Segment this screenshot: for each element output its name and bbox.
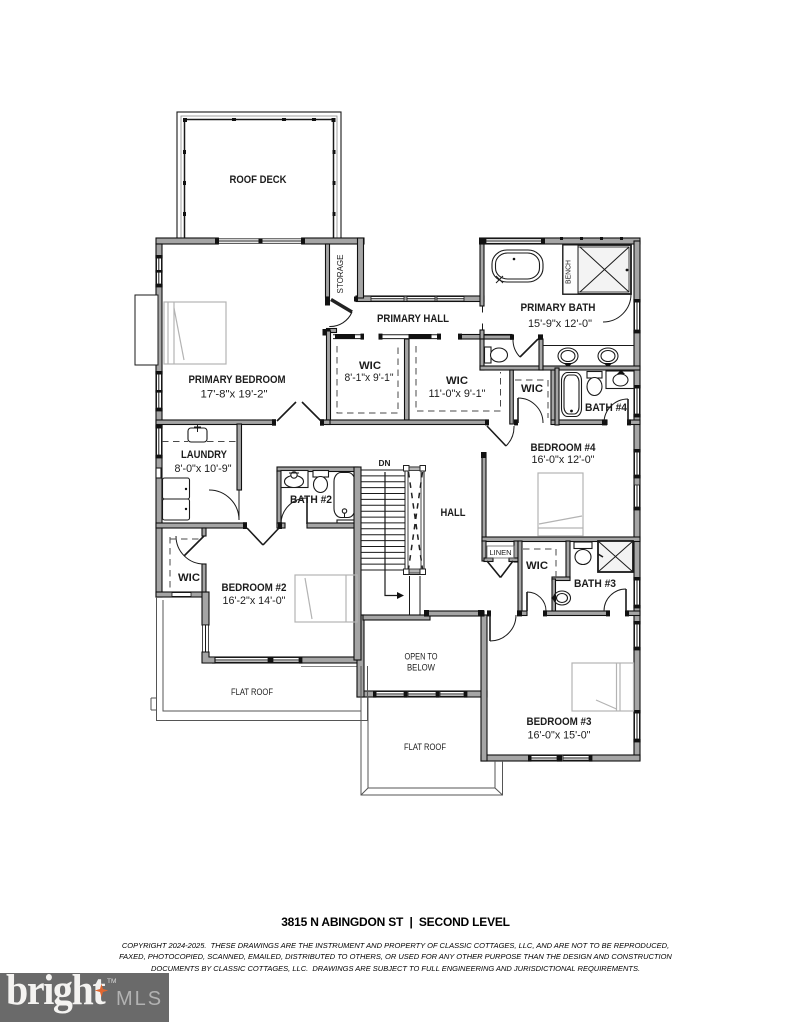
svg-text:8'-0"x 10'-9": 8'-0"x 10'-9"	[175, 463, 232, 475]
svg-text:8'-1"x 9'-1": 8'-1"x 9'-1"	[345, 372, 394, 384]
svg-text:PRIMARY BATH: PRIMARY BATH	[521, 302, 596, 314]
svg-text:15'-9"x 12'-0": 15'-9"x 12'-0"	[528, 318, 592, 330]
svg-text:BATH #4: BATH #4	[585, 402, 628, 414]
svg-text:BELOW: BELOW	[407, 663, 435, 673]
svg-text:FLAT ROOF: FLAT ROOF	[231, 687, 273, 697]
svg-text:STORAGE: STORAGE	[336, 255, 345, 294]
svg-text:LAUNDRY: LAUNDRY	[181, 449, 228, 461]
svg-text:BEDROOM #3: BEDROOM #3	[527, 716, 592, 728]
svg-text:BEDROOM #2: BEDROOM #2	[222, 582, 287, 594]
svg-text:BEDROOM #4: BEDROOM #4	[531, 442, 597, 454]
svg-text:OPEN TO: OPEN TO	[405, 652, 438, 662]
svg-text:FLAT ROOF: FLAT ROOF	[404, 742, 446, 752]
svg-text:17'-8"x 19'-2": 17'-8"x 19'-2"	[201, 389, 268, 401]
svg-text:HALL: HALL	[441, 507, 466, 519]
svg-text:BATH #2: BATH #2	[290, 494, 332, 506]
svg-text:WIC: WIC	[446, 375, 468, 387]
svg-text:16'-0"x 15'-0": 16'-0"x 15'-0"	[528, 730, 591, 742]
svg-text:11'-0"x 9'-1": 11'-0"x 9'-1"	[429, 388, 486, 400]
svg-text:WIC: WIC	[359, 360, 381, 372]
svg-text:BENCH: BENCH	[564, 260, 573, 284]
svg-text:ROOF DECK: ROOF DECK	[230, 174, 287, 186]
svg-text:WIC: WIC	[178, 572, 200, 584]
svg-text:BATH #3: BATH #3	[574, 578, 616, 590]
svg-text:PRIMARY BEDROOM: PRIMARY BEDROOM	[189, 374, 286, 386]
svg-text:16'-0"x 12'-0": 16'-0"x 12'-0"	[532, 454, 595, 466]
svg-text:LINEN: LINEN	[489, 548, 511, 557]
svg-text:DN: DN	[379, 459, 391, 468]
svg-text:16'-2"x 14'-0": 16'-2"x 14'-0"	[223, 595, 286, 607]
svg-text:WIC: WIC	[521, 383, 543, 395]
svg-text:PRIMARY HALL: PRIMARY HALL	[377, 313, 449, 325]
svg-text:WIC: WIC	[526, 560, 548, 572]
